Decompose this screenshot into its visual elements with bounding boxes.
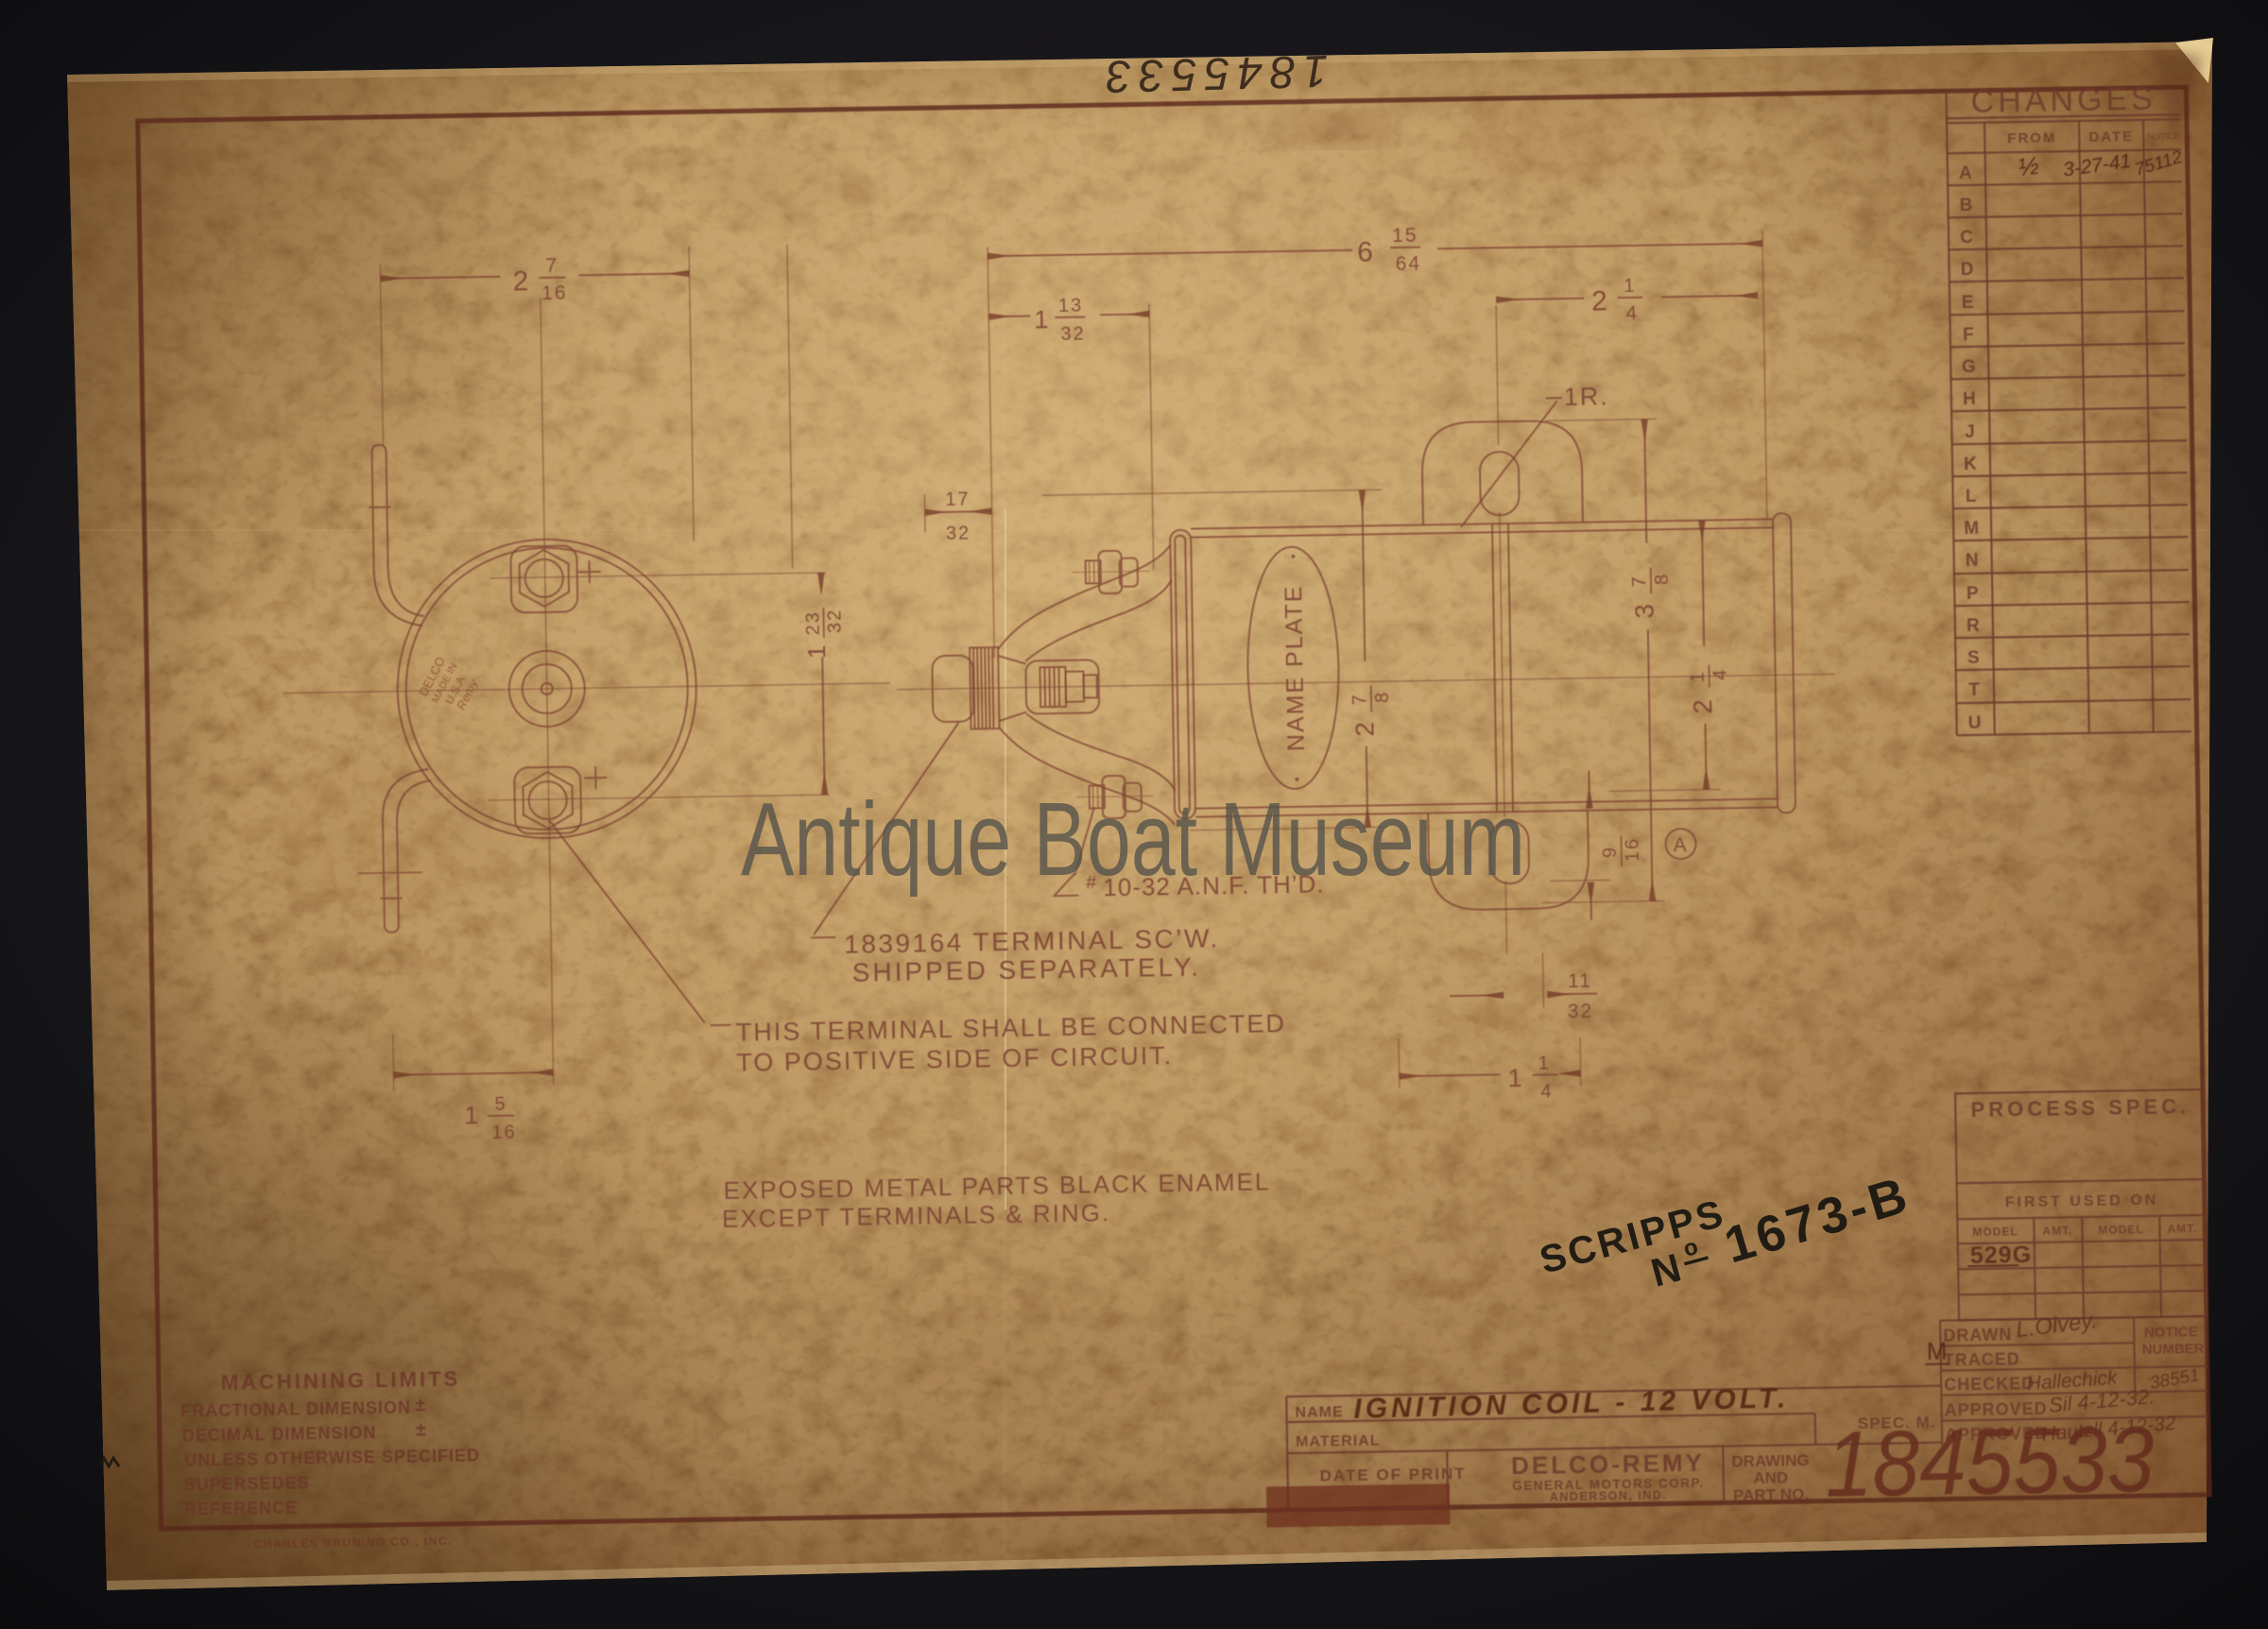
svg-text:AMT.: AMT. bbox=[2042, 1224, 2072, 1238]
svg-text:SUPERSEDES: SUPERSEDES bbox=[183, 1473, 309, 1494]
svg-text:B: B bbox=[1959, 196, 1972, 215]
svg-text:S: S bbox=[1967, 648, 1980, 668]
svg-text:FRACTIONAL DIMENSION: FRACTIONAL DIMENSION bbox=[180, 1398, 411, 1420]
svg-text:1: 1 bbox=[464, 1101, 481, 1129]
svg-text:32: 32 bbox=[1060, 323, 1086, 344]
svg-text:15: 15 bbox=[1392, 225, 1418, 247]
svg-text:17: 17 bbox=[945, 489, 971, 509]
svg-text:P: P bbox=[1967, 584, 1979, 604]
svg-text:DATE OF PRINT: DATE OF PRINT bbox=[1320, 1465, 1467, 1485]
svg-text:±: ± bbox=[415, 1395, 425, 1415]
svg-text:MACHINING LIMITS: MACHINING LIMITS bbox=[221, 1367, 461, 1395]
svg-text:DECIMAL DIMENSION: DECIMAL DIMENSION bbox=[182, 1423, 377, 1445]
svg-text:MODEL: MODEL bbox=[1972, 1225, 2019, 1239]
svg-text:9: 9 bbox=[1600, 846, 1621, 858]
svg-text:NOTICE: NOTICE bbox=[2147, 131, 2179, 142]
svg-text:NOTICE: NOTICE bbox=[2144, 1324, 2198, 1341]
svg-text:K: K bbox=[1964, 454, 1977, 474]
svg-text:C: C bbox=[1960, 228, 1973, 248]
svg-text:H: H bbox=[1963, 389, 1976, 409]
svg-text:CHANGES: CHANGES bbox=[1970, 81, 2156, 120]
svg-text:2: 2 bbox=[1349, 720, 1379, 737]
svg-text:NUMBER: NUMBER bbox=[2142, 1341, 2205, 1358]
svg-text:AND: AND bbox=[1753, 1468, 1788, 1487]
svg-text:U: U bbox=[1968, 713, 1982, 733]
svg-text:PROCESS SPEC.: PROCESS SPEC. bbox=[1970, 1094, 2190, 1122]
svg-text:3: 3 bbox=[1629, 602, 1658, 619]
svg-text:SHIPPED SEPARATELY.: SHIPPED SEPARATELY. bbox=[852, 952, 1202, 987]
svg-text:7: 7 bbox=[1349, 693, 1370, 705]
svg-text:1845533: 1845533 bbox=[1825, 1407, 2156, 1517]
svg-text:1: 1 bbox=[1507, 1064, 1524, 1092]
svg-text:FIRST USED ON: FIRST USED ON bbox=[2005, 1192, 2159, 1211]
svg-text:T: T bbox=[1968, 680, 1980, 700]
svg-text:2: 2 bbox=[512, 266, 530, 297]
svg-text:Antique Boat Museum: Antique Boat Museum bbox=[741, 781, 1525, 898]
svg-text:DRAWN: DRAWN bbox=[1943, 1325, 2012, 1345]
svg-text:1: 1 bbox=[1624, 276, 1636, 297]
svg-text:2: 2 bbox=[1591, 285, 1609, 317]
svg-text:MATERIAL: MATERIAL bbox=[1296, 1432, 1381, 1449]
svg-text:A: A bbox=[1959, 163, 1972, 183]
svg-text:32: 32 bbox=[824, 609, 845, 634]
svg-text:E: E bbox=[1962, 293, 1974, 313]
svg-text:8: 8 bbox=[1372, 691, 1393, 703]
svg-text:M: M bbox=[1964, 519, 1979, 539]
svg-text:1845533: 1845533 bbox=[1098, 45, 1329, 101]
svg-text:16: 16 bbox=[541, 283, 568, 304]
svg-text:G: G bbox=[1962, 357, 1976, 377]
svg-text:11: 11 bbox=[1568, 970, 1592, 992]
svg-text:L: L bbox=[1966, 487, 1977, 506]
svg-text:8: 8 bbox=[1652, 573, 1673, 585]
svg-text:DELCO-REMY: DELCO-REMY bbox=[1511, 1449, 1705, 1480]
svg-text:23: 23 bbox=[802, 610, 823, 636]
svg-text:D: D bbox=[1961, 260, 1974, 280]
svg-text:J: J bbox=[1965, 422, 1975, 442]
svg-text:1: 1 bbox=[1688, 670, 1709, 682]
svg-text:ANDERSON, IND.: ANDERSON, IND. bbox=[1550, 1488, 1668, 1503]
svg-text:DRAWING: DRAWING bbox=[1731, 1451, 1809, 1470]
svg-text:NAME: NAME bbox=[1295, 1404, 1343, 1421]
svg-text:1: 1 bbox=[802, 643, 831, 659]
svg-text:64: 64 bbox=[1396, 253, 1422, 275]
svg-text:32: 32 bbox=[1568, 1001, 1594, 1022]
svg-text:16: 16 bbox=[491, 1123, 517, 1143]
svg-text:TRACED: TRACED bbox=[1944, 1349, 2020, 1369]
svg-text:32: 32 bbox=[946, 523, 971, 543]
svg-text:DATE: DATE bbox=[2088, 129, 2134, 146]
svg-text:4: 4 bbox=[1710, 668, 1731, 680]
svg-text:MODEL: MODEL bbox=[2098, 1223, 2144, 1237]
svg-text:REFERENCE: REFERENCE bbox=[184, 1498, 298, 1518]
svg-text:2: 2 bbox=[1688, 697, 1717, 714]
svg-text:13: 13 bbox=[1058, 295, 1084, 316]
svg-text:NAME PLATE: NAME PLATE bbox=[1280, 584, 1310, 751]
svg-text:1R.: 1R. bbox=[1564, 382, 1610, 411]
svg-text:F: F bbox=[1963, 325, 1974, 345]
svg-text:FROM: FROM bbox=[2007, 129, 2056, 146]
svg-text:CHECKED: CHECKED bbox=[1944, 1374, 2035, 1395]
svg-text:6: 6 bbox=[1357, 236, 1375, 267]
svg-text:4: 4 bbox=[1540, 1081, 1553, 1102]
svg-text:7: 7 bbox=[1629, 574, 1650, 587]
svg-text:N: N bbox=[1966, 551, 1979, 571]
svg-text:AMT.: AMT. bbox=[2167, 1222, 2197, 1236]
svg-text:7: 7 bbox=[545, 255, 558, 277]
svg-text:PART NO.: PART NO. bbox=[1733, 1485, 1809, 1504]
svg-text:R: R bbox=[1967, 616, 1980, 636]
svg-text:5: 5 bbox=[494, 1094, 507, 1115]
svg-text:A: A bbox=[1673, 834, 1688, 856]
svg-text:½: ½ bbox=[2017, 151, 2040, 181]
svg-text:1: 1 bbox=[1034, 305, 1051, 334]
svg-text:M: M bbox=[1926, 1336, 1947, 1364]
svg-text:4: 4 bbox=[1626, 303, 1639, 324]
svg-text:16: 16 bbox=[1622, 837, 1642, 863]
svg-text:±: ± bbox=[416, 1419, 426, 1440]
svg-text:1: 1 bbox=[1538, 1053, 1551, 1073]
